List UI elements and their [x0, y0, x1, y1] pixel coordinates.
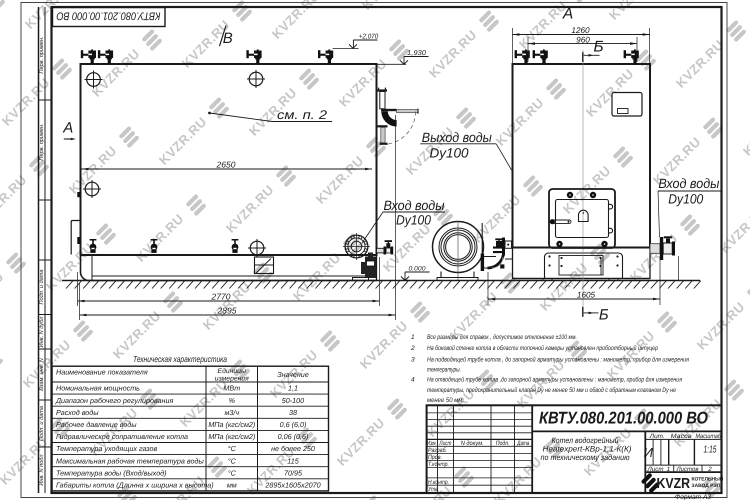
svg-text:1: 1	[667, 466, 670, 473]
svg-text:Листов: Листов	[676, 466, 700, 473]
svg-text:3: 3	[411, 357, 415, 364]
svg-text:Рабочее давление воды: Рабочее давление воды	[56, 420, 137, 429]
svg-text:МВт: МВт	[223, 384, 240, 393]
svg-text:м3/ч: м3/ч	[224, 408, 239, 417]
svg-text:1260: 1260	[571, 26, 590, 35]
svg-text:менее 50 мм.: менее 50 мм.	[427, 397, 464, 404]
svg-text:Разраб.: Разраб.	[428, 447, 447, 454]
svg-text:Гидравлическое сопративление к: Гидравлическое сопративление котла	[56, 432, 188, 441]
svg-text:+2,070: +2,070	[359, 33, 379, 40]
svg-text:Лист: Лист	[646, 466, 663, 473]
svg-text:Максимальная рабочая температу: Максимальная рабочая температура воды	[56, 456, 204, 465]
svg-text:115: 115	[287, 456, 299, 465]
svg-text:Изм.: Изм.	[427, 440, 437, 447]
svg-text:Б: Б	[599, 307, 609, 324]
svg-text:Подп. и дата: Подп. и дата	[38, 406, 45, 441]
svg-text:Температура уходящих газов: Температура уходящих газов	[56, 444, 158, 453]
svg-text:1:15: 1:15	[704, 445, 717, 456]
svg-text:Все размеры для справок , допу: Все размеры для справок , допустимое отк…	[427, 334, 577, 341]
svg-text:Н.контр.: Н.контр.	[428, 479, 449, 486]
svg-text:Номинальная мощность: Номинальная мощность	[56, 384, 140, 393]
svg-text:мм: мм	[227, 480, 237, 489]
svg-text:КВТУ.080.201.00.000 ВО: КВТУ.080.201.00.000 ВО	[56, 10, 160, 22]
svg-text:2: 2	[410, 345, 415, 352]
svg-text:1,930: 1,930	[407, 50, 426, 57]
svg-text:Выход воды: Выход воды	[422, 130, 492, 145]
svg-text:Вход воды: Вход воды	[658, 176, 719, 191]
svg-text:Взам. инв. N: Взам. инв. N	[39, 357, 45, 391]
svg-text:2895: 2895	[217, 305, 237, 315]
svg-text:ЗАВОД РЭП: ЗАВОД РЭП	[692, 483, 721, 489]
svg-text:см. п. 2: см. п. 2	[277, 108, 327, 122]
svg-text:%: %	[229, 396, 236, 405]
svg-text:Перв. примен.: Перв. примен.	[39, 123, 45, 160]
svg-text:Диапазон рабочего регулировани: Диапазон рабочего регулирования	[55, 396, 174, 405]
svg-text:38: 38	[289, 408, 297, 417]
svg-text:Dy100: Dy100	[396, 213, 431, 228]
svg-text:Лит.: Лит.	[649, 433, 665, 440]
svg-text:Подп. и дата: Подп. и дата	[38, 269, 45, 304]
svg-text:Т.контр.: Т.контр.	[428, 461, 449, 468]
svg-text:И: И	[644, 445, 654, 460]
svg-text:Лист: Лист	[439, 440, 452, 447]
svg-text:Вход воды: Вход воды	[384, 198, 445, 213]
svg-text:0,6 (6,0): 0,6 (6,0)	[280, 420, 307, 429]
svg-text:Утв.: Утв.	[427, 486, 439, 493]
svg-text:Формат А3: Формат А3	[675, 494, 711, 500]
svg-text:Пров.: Пров.	[428, 454, 442, 461]
svg-text:Значение: Значение	[277, 370, 309, 379]
svg-text:КОТЕЛЬНЫЙ: КОТЕЛЬНЫЙ	[692, 476, 724, 483]
svg-text:2895х1605х2070: 2895х1605х2070	[264, 480, 320, 489]
svg-text:Инв. N подл: Инв. N подл	[38, 454, 45, 486]
svg-text:Габариты котла (Длинна х ширин: Габариты котла (Длинна х ширина х высота…	[56, 480, 214, 489]
svg-text:°С: °С	[228, 444, 237, 453]
svg-text:1,1: 1,1	[288, 384, 298, 393]
svg-text:Инв. N дубл: Инв. N дубл	[38, 316, 45, 348]
svg-text:960: 960	[576, 35, 590, 44]
svg-text:по техническому заданию: по техническому заданию	[541, 453, 630, 462]
svg-text:Наименование показателя: Наименование показателя	[56, 368, 148, 377]
svg-text:На боковой стенке котла в обла: На боковой стенке котла в области топочн…	[427, 345, 658, 352]
svg-text:N докум.: N докум.	[461, 440, 484, 447]
svg-text:2: 2	[707, 466, 712, 473]
svg-text:Dy100: Dy100	[668, 191, 703, 206]
svg-text:0,06 (0,6): 0,06 (0,6)	[278, 432, 309, 441]
svg-text:Единицы: Единицы	[218, 368, 246, 375]
svg-text:°С: °С	[228, 468, 237, 477]
svg-text:МПа (кгс/см2): МПа (кгс/см2)	[208, 432, 255, 441]
svg-text:Температура воды (Вход/выход): Температура воды (Вход/выход)	[56, 468, 167, 477]
svg-text:МПа (кгс/см2): МПа (кгс/см2)	[208, 420, 255, 429]
svg-text:Б: Б	[593, 39, 603, 56]
svg-text:Масса: Масса	[671, 433, 693, 440]
svg-text:2770: 2770	[211, 292, 231, 302]
svg-text:На подводящей трубе котла ,: На подводящей трубе котла , до запорной …	[427, 357, 689, 364]
svg-text:температуры, предохранительный: температуры, предохранительный клапан Dу…	[427, 387, 676, 394]
svg-text:Масштаб: Масштаб	[695, 433, 721, 440]
svg-text:1605: 1605	[577, 291, 596, 300]
svg-text:70/95: 70/95	[284, 468, 303, 477]
svg-text:измерения: измерения	[215, 376, 249, 383]
svg-text:В: В	[223, 30, 233, 47]
svg-text:2650: 2650	[216, 160, 236, 170]
svg-text:Перв. примен.: Перв. примен.	[39, 36, 45, 73]
svg-text:KVZR: KVZR	[657, 476, 691, 492]
svg-text:0.000: 0.000	[409, 265, 426, 272]
svg-text:не более 250: не более 250	[271, 444, 315, 453]
svg-text:1: 1	[411, 334, 415, 341]
svg-text:°С: °С	[228, 456, 237, 465]
svg-text:Подп.: Подп.	[496, 440, 510, 447]
svg-text:А: А	[562, 6, 573, 23]
svg-text:КВТУ.080.201.00.000 ВО: КВТУ.080.201.00.000 ВО	[539, 408, 708, 427]
svg-text:50-100: 50-100	[282, 396, 304, 405]
svg-text:Техническая характеристика: Техническая характеристика	[133, 354, 227, 364]
svg-text:На отводящей трубе котла ,до з: На отводящей трубе котла ,до запорной ар…	[427, 377, 682, 384]
svg-text:4: 4	[411, 377, 415, 384]
svg-text:Расход воды: Расход воды	[56, 408, 99, 417]
svg-text:Дата: Дата	[517, 440, 530, 447]
svg-text:температуры.: температуры.	[427, 367, 461, 374]
svg-text:Dy100: Dy100	[430, 146, 469, 161]
svg-text:А: А	[62, 120, 73, 137]
